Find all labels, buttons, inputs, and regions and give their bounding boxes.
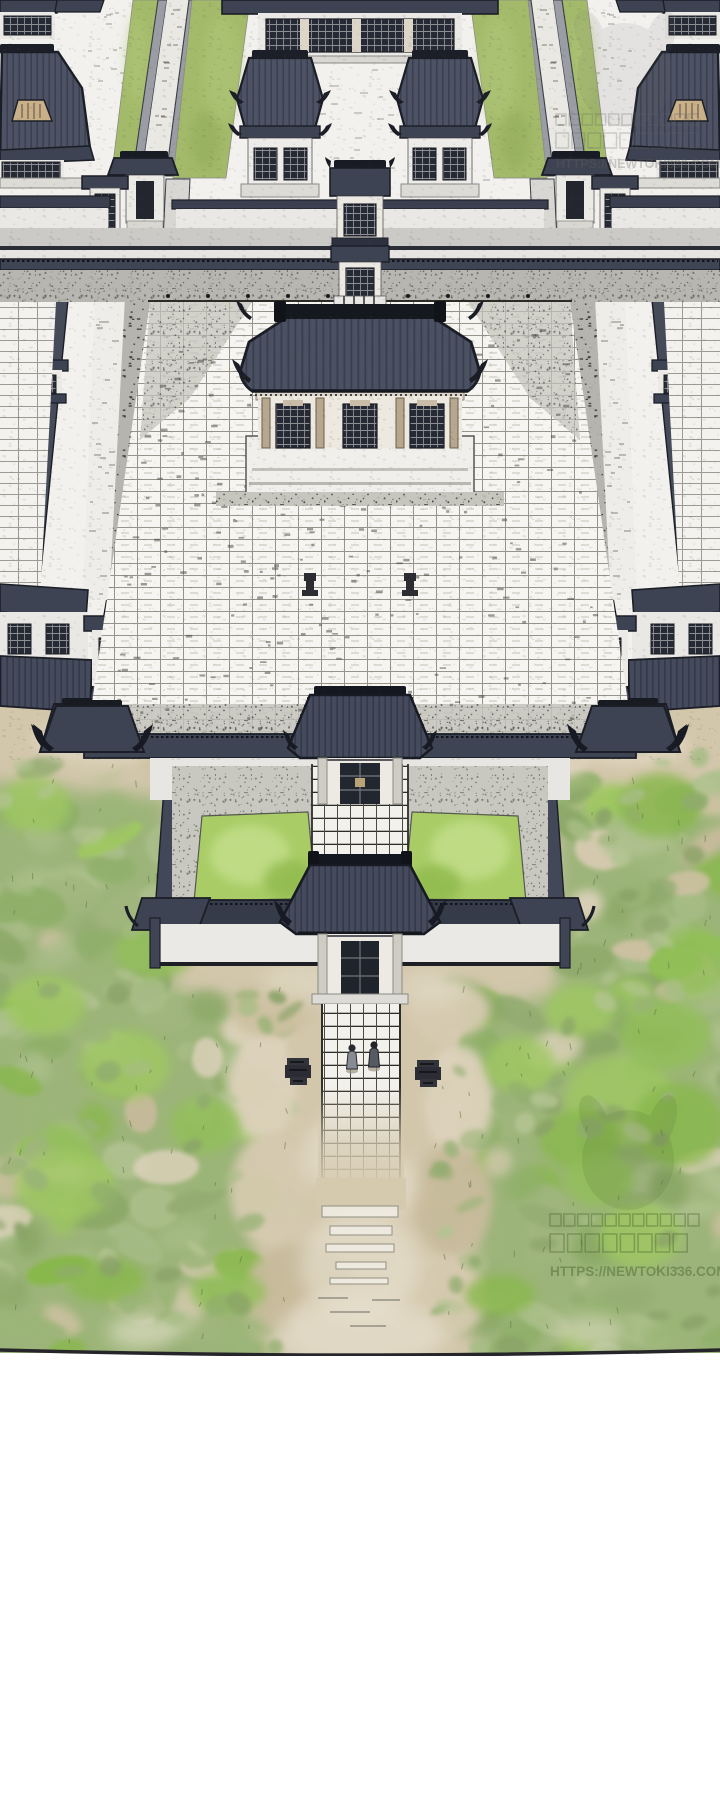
svg-text:HTTPS://NEWTOKI336.COM: HTTPS://NEWTOKI336.COM (550, 1264, 720, 1279)
